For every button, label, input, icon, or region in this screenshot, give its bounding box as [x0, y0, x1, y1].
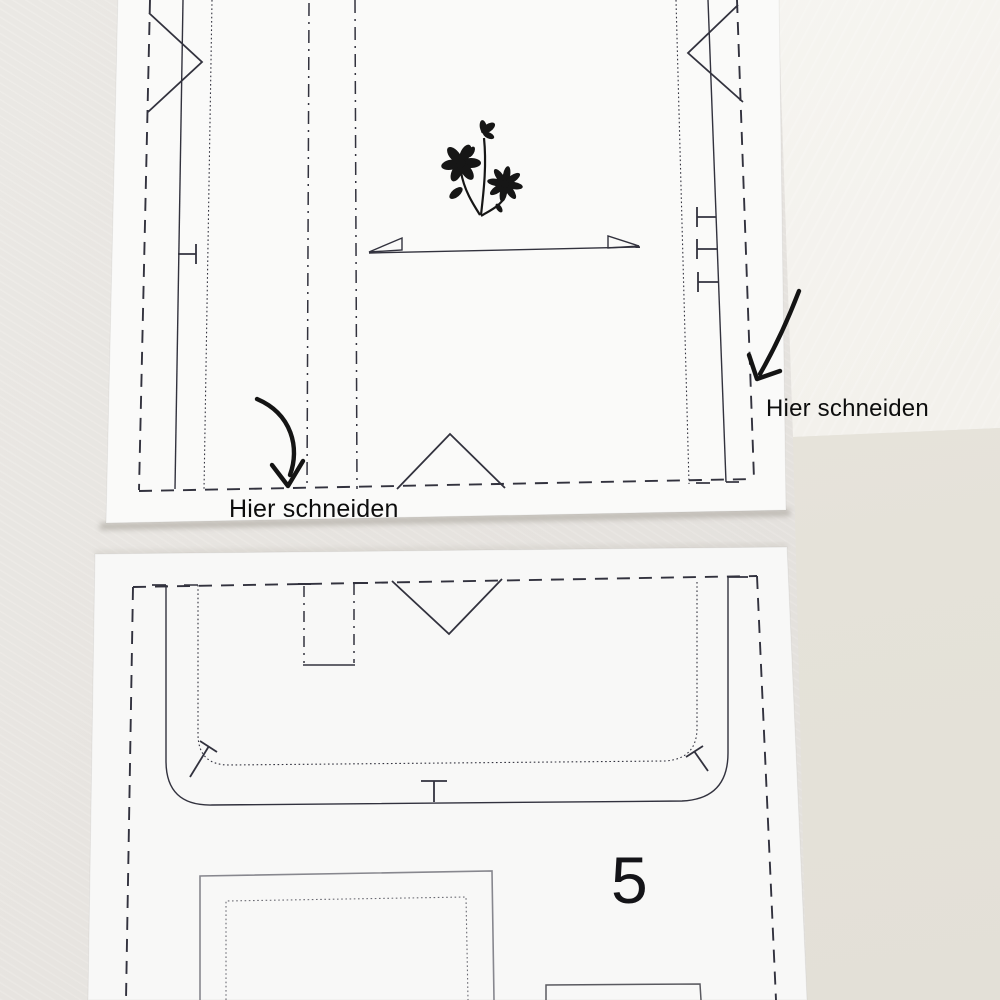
- bottom-pattern-sheet: [88, 547, 807, 1000]
- pattern-sheets-drawing: [0, 0, 1000, 1000]
- cut-here-label-right: Hier schneiden: [766, 395, 929, 423]
- sheet-page-number: 5: [611, 842, 648, 918]
- photo-of-pattern-sheets: Hier schneiden Hier schneiden 5: [0, 0, 1000, 1000]
- cut-here-label-left: Hier schneiden: [229, 495, 399, 524]
